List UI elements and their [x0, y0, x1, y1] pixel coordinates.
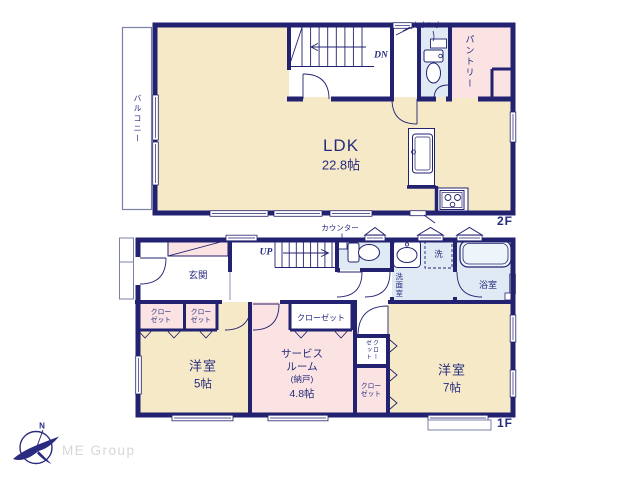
stairs-down-label: DN: [374, 51, 388, 62]
pantry-label: パントリー: [465, 35, 474, 90]
closet-label: クローゼット: [297, 313, 345, 322]
floor1-label: 1F: [497, 417, 513, 431]
closet-line: クロー: [191, 309, 211, 317]
laundry-label: 洗: [434, 250, 443, 260]
counter-label-1f: カウンター: [321, 225, 359, 234]
floor-2f-plan: [123, 23, 516, 223]
washroom-label: 洗面室: [395, 272, 403, 298]
bathtub-icon: [460, 241, 511, 268]
compass-north-label: N: [39, 421, 45, 430]
closet-line: クロー: [151, 309, 171, 317]
room7-size-label: 7帖: [443, 382, 461, 395]
window-hoods: [365, 228, 482, 236]
closet-line: ゼット: [365, 340, 371, 361]
bathroom-label: 浴室: [479, 280, 497, 290]
ldk-size-label: 22.8帖: [322, 159, 360, 174]
stairs-up-label: UP: [260, 248, 273, 259]
closet-label: クロー ゼット: [191, 309, 211, 325]
closet-line: クロー: [361, 383, 381, 391]
service-room-storage-label: (納戸): [291, 375, 314, 385]
floor2-label: 2F: [497, 215, 513, 229]
terrace-step: [428, 420, 491, 430]
kitchen-sink-icon: [412, 134, 433, 173]
porch-step: [120, 262, 134, 299]
closet-label-vertical: クロー ゼット: [365, 340, 378, 361]
balcony-label: バルコニー: [133, 94, 141, 144]
closet-line: クロー: [372, 340, 378, 361]
compass-icon: [13, 430, 59, 464]
service-room-size-label: 4.8帖: [289, 388, 314, 400]
entrance-opening: [135, 257, 141, 285]
company-logo-text: ME Group: [62, 443, 136, 458]
service-room-label: サービス: [281, 348, 323, 360]
room5-label: 洋室: [189, 360, 217, 375]
entrance-label: 玄関: [188, 272, 207, 283]
floor-1f-plan: [120, 228, 516, 431]
closet-label: クロー ゼット: [151, 309, 171, 325]
room7-label: 洋室: [438, 364, 466, 379]
counter-label-2f: カウンター: [412, 22, 450, 31]
closet-label: クロー ゼット: [361, 383, 381, 399]
vanity-sink-icon: [394, 241, 421, 268]
service-room-label2: ルーム: [286, 361, 317, 373]
closet-line: ゼット: [151, 317, 171, 325]
stove-icon: [440, 191, 464, 210]
floorplan-drawing: [0, 0, 640, 480]
porch-step: [120, 238, 134, 262]
room5-size-label: 5帖: [194, 378, 212, 391]
ldk-label: LDK: [323, 136, 359, 156]
closet-line: ゼット: [361, 391, 381, 399]
closet-line: ゼット: [191, 317, 211, 325]
floorplan-page: バルコニー LDK 22.8帖 DN カウンター パントリー 2F カウンター …: [0, 0, 640, 480]
